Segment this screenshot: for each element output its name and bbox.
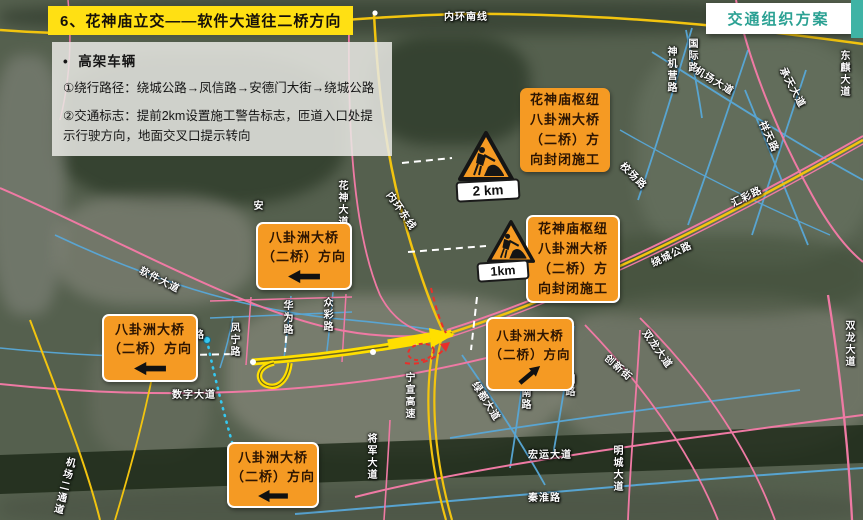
scheme-badge: 交通组织方案 [706,3,851,34]
route-direction-arrow-red [405,288,450,364]
traffic-signage-item: ②交通标志：提前2km设置施工警告标志，匝道入口处提示行驶方向，地面交叉口提示转… [63,107,381,146]
construction-sign-2km [458,130,514,182]
construction-sign-1km [487,219,535,264]
closure-sign-line: 八卦洲大桥 [538,239,608,259]
direction-sign-line: 八卦洲大桥 [496,327,564,346]
closure-sign-line: 向封闭施工 [538,279,608,299]
direction-sign-line: （二桥）方向 [108,339,192,358]
road-label: 花神大道 [334,180,349,228]
road-label: 数字大道 [172,386,216,401]
direction-sign-line: 八卦洲大桥 [115,320,185,339]
slide-canvas: 内环南线 神机营路 国际路 机场大道 承天大道 东麒大道 祥天路 校场路 绕城公… [0,0,863,520]
page-title: 6、花神庙立交——软件大道往二桥方向 [48,6,353,35]
direction-sign-left-1: 八卦洲大桥 （二桥）方向 [256,222,352,290]
road-label: 内环南线 [444,8,488,23]
road-label: 华为路 [279,300,294,336]
left-arrow-icon [132,361,168,376]
direction-sign-left-3: 八卦洲大桥 （二桥）方向 [227,442,319,508]
closure-sign-line: 花神庙枢纽 [538,219,608,239]
road-label: 双龙大道 [841,320,856,368]
closure-sign-2: 花神庙枢纽 八卦洲大桥 （二桥）方 向封闭施工 [526,215,620,303]
closure-sign-line: 向封闭施工 [530,150,600,170]
closure-sign-line: （二桥）方 [530,130,600,150]
direction-sign-upright: 八卦洲大桥 （二桥）方向 [486,317,574,391]
direction-sign-line: （二桥）方向 [489,346,570,365]
road-label: 宏运大道 [528,446,572,461]
info-heading-text: 高架车辆 [78,54,136,69]
road-label: 秦淮路 [528,489,561,504]
distance-plate-1km: 1km [476,259,529,283]
left-arrow-icon [286,269,322,284]
road-label: 将军大道 [363,433,378,481]
direction-sign-line: 八卦洲大桥 [269,228,339,247]
direction-sign-line: （二桥）方向 [231,467,315,486]
left-arrow-icon [256,489,290,503]
closure-sign-line: 花神庙枢纽 [530,90,600,110]
detour-route-item: ①绕行路径：绕城公路→凤信路→安德门大街→绕城公路 [63,79,381,98]
road-label: 凤宁路 [226,322,241,358]
direction-sign-line: （二桥）方向 [262,247,346,266]
road-label: 神机营路 [663,46,678,94]
road-label: 东麒大道 [836,50,851,98]
closure-sign-line: 八卦洲大桥 [530,110,600,130]
info-panel: • 高架车辆 ①绕行路径：绕城公路→凤信路→安德门大街→绕城公路 ②交通标志：提… [52,42,392,156]
info-panel-heading: • 高架车辆 [63,50,381,70]
direction-sign-left-2: 八卦洲大桥 （二桥）方向 [102,314,198,382]
closure-sign-line: （二桥）方 [538,259,608,279]
direction-sign-line: 八卦洲大桥 [238,448,308,467]
scheme-badge-accent-strip [851,0,863,38]
distance-plate-2km: 2 km [455,178,520,202]
road-label: 安 [249,200,264,212]
closure-sign-1: 花神庙枢纽 八卦洲大桥 （二桥）方 向封闭施工 [520,88,610,172]
road-label: 宁宣高速 [401,372,416,420]
road-label: 众彩路 [319,297,334,333]
road-label: 明城大道 [609,445,624,493]
bullet-icon: • [63,54,69,69]
